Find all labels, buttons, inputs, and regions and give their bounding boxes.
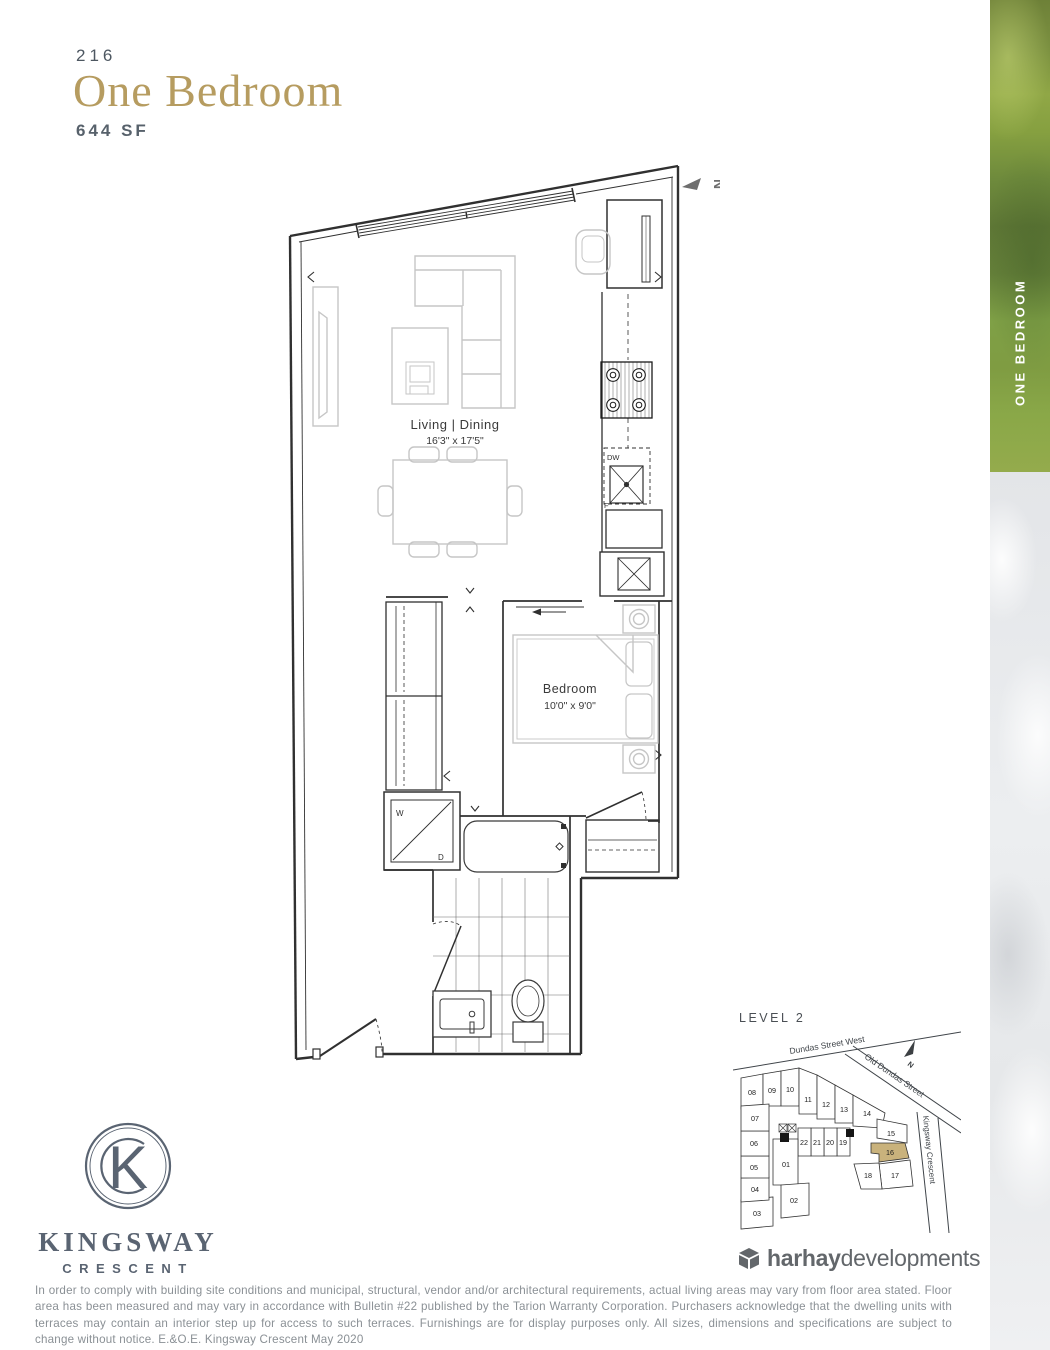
developer-name: harhaydevelopments <box>767 1245 980 1272</box>
side-banner-label: ONE BEDROOM <box>990 278 1050 406</box>
entry-door <box>313 1019 383 1059</box>
vanity-sink <box>433 991 491 1037</box>
svg-text:04: 04 <box>751 1185 759 1194</box>
svg-text:18: 18 <box>864 1171 872 1180</box>
north-arrow-icon: N <box>682 178 720 190</box>
svg-text:22: 22 <box>800 1138 808 1147</box>
bedroom-sliding-door <box>516 607 584 616</box>
cube-icon <box>735 1244 763 1272</box>
nightstands <box>623 605 655 773</box>
svg-text:16: 16 <box>886 1148 894 1157</box>
svg-text:14: 14 <box>863 1109 871 1118</box>
svg-text:15: 15 <box>887 1129 895 1138</box>
svg-text:13: 13 <box>840 1105 848 1114</box>
page-title: One Bedroom <box>73 64 343 117</box>
svg-text:09: 09 <box>768 1086 776 1095</box>
developer-name-light: developments <box>841 1245 981 1271</box>
stove <box>601 362 652 418</box>
bathroom-door <box>433 926 461 995</box>
window-band <box>356 188 575 238</box>
north-label: N <box>711 179 720 189</box>
developer-name-bold: harhay <box>767 1245 841 1271</box>
svg-text:08: 08 <box>748 1088 756 1097</box>
bedroom-label: Bedroom <box>543 682 597 696</box>
sofa <box>415 256 515 408</box>
desk-nook <box>607 200 662 288</box>
dryer-label: D <box>438 853 444 862</box>
svg-text:05: 05 <box>750 1163 758 1172</box>
street-label-old-dundas: Old Dundas Street <box>863 1051 927 1099</box>
logo-subtitle: CRESCENT <box>28 1261 228 1276</box>
developer-logo: harhaydevelopments <box>735 1244 980 1272</box>
svg-text:17: 17 <box>891 1171 899 1180</box>
bedroom-closet <box>586 792 659 872</box>
monogram-letter: K <box>108 1134 148 1201</box>
exterior-walls <box>290 166 678 1059</box>
svg-text:07: 07 <box>751 1114 759 1123</box>
kingsway-monogram-icon: K <box>82 1118 174 1214</box>
fridge <box>606 510 662 548</box>
street-label-dundas-west: Dundas Street West <box>789 1034 866 1056</box>
side-banner-leaves <box>990 472 1050 1350</box>
svg-text:19: 19 <box>839 1138 847 1147</box>
fridge-label: F <box>604 501 609 510</box>
svg-text:11: 11 <box>804 1095 811 1104</box>
tv-console <box>313 287 338 426</box>
bathtub <box>464 821 568 872</box>
svg-text:03: 03 <box>753 1209 761 1218</box>
svg-text:02: 02 <box>790 1196 798 1205</box>
keyplan-north-label: N <box>906 1059 916 1069</box>
svg-text:01: 01 <box>782 1160 790 1169</box>
unit-number: 216 <box>76 46 116 66</box>
wall-inner-lines <box>299 177 673 1050</box>
svg-text:20: 20 <box>826 1138 834 1147</box>
keyplan: LEVEL 2 Dundas Street West Old Dundas St… <box>733 1002 961 1240</box>
dining-set <box>378 447 522 557</box>
logo-name: KINGSWAY <box>28 1227 228 1258</box>
utility-closet <box>600 552 664 596</box>
keyplan-north-icon: N <box>904 1040 916 1070</box>
svg-text:10: 10 <box>786 1085 794 1094</box>
kitchen-sink <box>610 466 643 503</box>
bathroom <box>433 821 570 1052</box>
direction-chevrons <box>308 272 661 811</box>
desk-chair <box>576 230 610 274</box>
svg-text:12: 12 <box>822 1100 830 1109</box>
area-label: 644 SF <box>76 121 149 141</box>
svg-text:06: 06 <box>750 1139 758 1148</box>
coffee-table <box>392 328 448 404</box>
corridor-closet <box>386 602 442 790</box>
floorplan-drawing: W D <box>270 160 720 1080</box>
bedroom-dims: 10'0" x 9'0" <box>544 700 596 712</box>
svg-text:21: 21 <box>813 1138 821 1147</box>
kingsway-logo: K KINGSWAY CRESCENT <box>28 1118 228 1276</box>
washer-dryer <box>384 792 460 870</box>
keyplan-title: LEVEL 2 <box>739 1011 805 1025</box>
washer-label: W <box>396 809 404 818</box>
toilet <box>512 980 544 1042</box>
living-room-dims: 16'3" x 17'5" <box>426 435 484 447</box>
disclaimer-text: In order to comply with building site co… <box>35 1283 952 1349</box>
dishwasher-label: DW <box>607 453 620 462</box>
living-room-label: Living | Dining <box>411 417 500 432</box>
